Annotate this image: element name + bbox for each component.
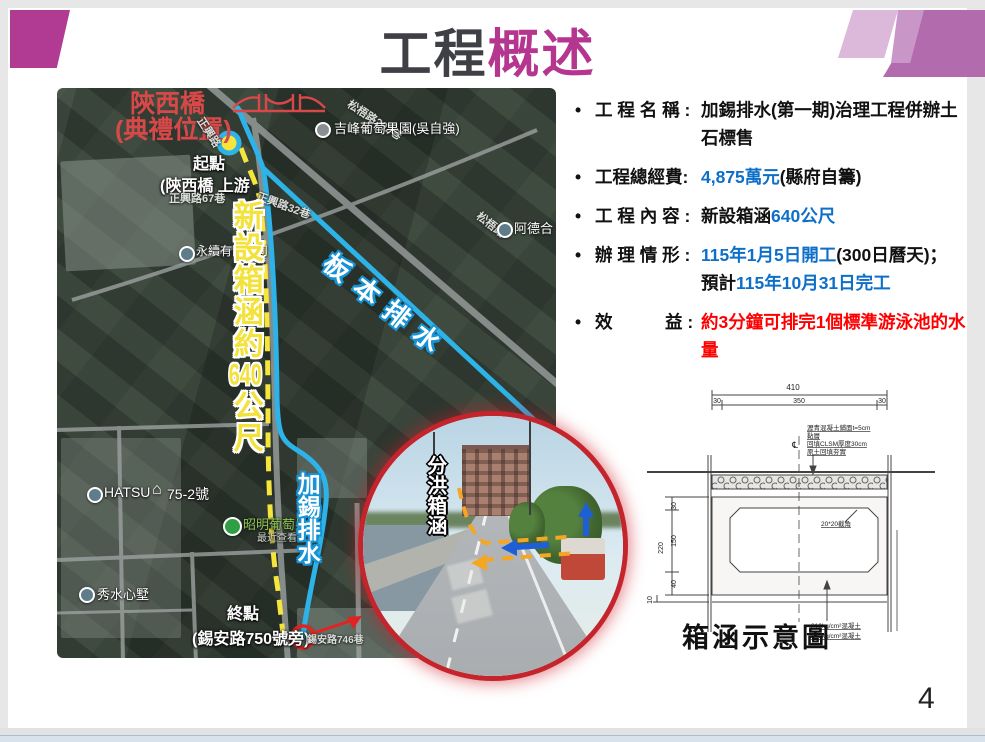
map-pin-icon — [87, 487, 103, 503]
bullet-label: 辦 理 情 形 : — [595, 241, 701, 297]
dim-wall-top: 30 — [671, 502, 678, 510]
bullet-label: 效 益 : — [595, 308, 701, 364]
inset-flow-arrows — [363, 416, 623, 676]
bullet-label: 工程總經費: — [595, 163, 701, 191]
bullet-value: 約3分鐘可排完1個標準游泳池的水量 — [701, 308, 971, 364]
bullet-value: 新設箱涵640公尺 — [701, 202, 971, 230]
page-number: 4 — [918, 682, 935, 716]
dim-edge-right: 30 — [878, 398, 886, 405]
bullet-value-segment: 115年1月5日開工 — [701, 245, 836, 265]
bullet-value-segment: 預計 — [701, 273, 736, 293]
dim-total-width: 410 — [786, 383, 800, 392]
culvert-cross-section-diagram: 410 30 350 30 220 30 150 40 10 ℄ 瀝青混凝土鋪面… — [645, 378, 937, 640]
bullet-value: 4,875萬元(縣府自籌) — [701, 163, 971, 191]
house-icon: ⌂ — [152, 481, 162, 499]
diagram-title: 箱涵示意圖 — [682, 616, 832, 655]
street-label-67: 正興路67巷 — [169, 190, 225, 206]
bullet-dot: • — [575, 163, 595, 191]
bullet-value-segment: 約3分鐘可排完1個標準游泳池的水量 — [701, 312, 965, 360]
flow-arrow-up-head — [578, 502, 594, 517]
title-part-black: 工程 — [379, 26, 487, 84]
dim-slab-bottom: 40 — [671, 580, 678, 588]
dim-inner-width: 350 — [793, 398, 805, 405]
page-title: 工程概述 — [8, 12, 967, 87]
map-pin-icon — [315, 122, 331, 138]
bullet-value-segment: 加錫排水(第一期)治理工程併辦土石標售 — [701, 100, 958, 148]
note-pavement: 瀝青混凝土鋪面t=5cm — [807, 423, 870, 432]
centerline-symbol: ℄ — [791, 440, 798, 450]
bullet-value-segment: (縣府自籌) — [780, 167, 862, 187]
bullet-value-segment: 4,875萬元 — [701, 167, 780, 187]
bullet-item: •辦 理 情 形 : 115年1月5日開工(300日曆天)；預計115年10月3… — [575, 241, 971, 297]
poi-jifeng-label: 吉峰葡萄果園(吳自強) — [334, 118, 460, 137]
culvert-annotation-text: 新設箱涵約 — [229, 200, 262, 360]
culvert-annotation-length: 640 — [229, 360, 262, 390]
dim-edge-left: 30 — [713, 398, 721, 405]
new-culvert-annotation: 新設箱涵約640公尺 — [229, 200, 261, 454]
bridge-icon — [233, 94, 325, 111]
poi-house-number-label: 75-2號 — [167, 484, 209, 504]
end-note-label: (錫安路750號旁) — [192, 625, 309, 649]
bullet-value-segment: 新設箱涵 — [701, 206, 771, 226]
bullet-list: •工 程 名 稱 : 加錫排水(第一期)治理工程併辦土石標售•工程總經費: 4,… — [575, 96, 971, 375]
dim-inner-height: 150 — [671, 535, 678, 547]
bullet-value-segment: (300日曆天)； — [836, 245, 947, 265]
note-clsm: 回填CLSM厚度30cm — [807, 439, 867, 448]
diversion-culvert-label: 分洪箱涵 — [423, 455, 446, 535]
poi-xiushui-label: 秀水心墅 — [97, 584, 149, 603]
bullet-dot: • — [575, 202, 595, 230]
grape-farm-icon — [223, 517, 242, 536]
bullet-value: 115年1月5日開工(300日曆天)；預計115年10月31日完工 — [701, 241, 971, 297]
note-chamfer: 20*20截角 — [821, 519, 851, 528]
poi-ade-label: 阿德合 — [514, 218, 553, 237]
diagram-linework — [647, 390, 935, 632]
dim-base: 10 — [647, 596, 654, 604]
end-point-label: 終點 — [227, 600, 259, 624]
title-part-magenta: 概述 — [488, 26, 596, 84]
street-view-inset: 分洪箱涵 — [363, 416, 623, 676]
bullet-dot: • — [575, 96, 595, 152]
map-pin-icon — [497, 222, 513, 238]
bullet-item: •效 益 : 約3分鐘可排完1個標準游泳池的水量 — [575, 308, 971, 364]
culvert-annotation-unit: 公尺 — [229, 390, 262, 454]
jiaxi-drain-label: 加錫排水 — [295, 472, 319, 564]
note-tack-coat: 黏層 — [807, 431, 820, 440]
start-point-label: 起點 — [193, 150, 225, 174]
bullet-label: 工 程 名 稱 : — [595, 96, 701, 152]
bullet-value: 加錫排水(第一期)治理工程併辦土石標售 — [701, 96, 971, 152]
poi-hatsu-label: HATSU — [104, 484, 150, 500]
bullet-item: •工 程 名 稱 : 加錫排水(第一期)治理工程併辦土石標售 — [575, 96, 971, 152]
screenshot-root: { "page": { "page_number": "4", "bullet_… — [0, 0, 985, 741]
bullet-dot: • — [575, 308, 595, 364]
map-pin-icon — [179, 246, 195, 262]
bullet-value-segment: 115年10月31日完工 — [736, 273, 891, 293]
bullet-value-segment: 640公尺 — [771, 206, 835, 226]
bullet-label: 工 程 內 容 : — [595, 202, 701, 230]
bullet-item: •工 程 內 容 : 新設箱涵640公尺 — [575, 202, 971, 230]
note-backfill: 原土回填夯實 — [807, 447, 847, 456]
dim-height-total: 220 — [658, 542, 665, 554]
bullet-item: •工程總經費: 4,875萬元(縣府自籌) — [575, 163, 971, 191]
diversion-arrowhead — [471, 554, 487, 571]
bullet-dot: • — [575, 241, 595, 297]
flow-arrow-left — [515, 545, 549, 547]
map-pin-icon — [79, 587, 95, 603]
street-label-746: 錫安路746巷 — [307, 631, 364, 646]
